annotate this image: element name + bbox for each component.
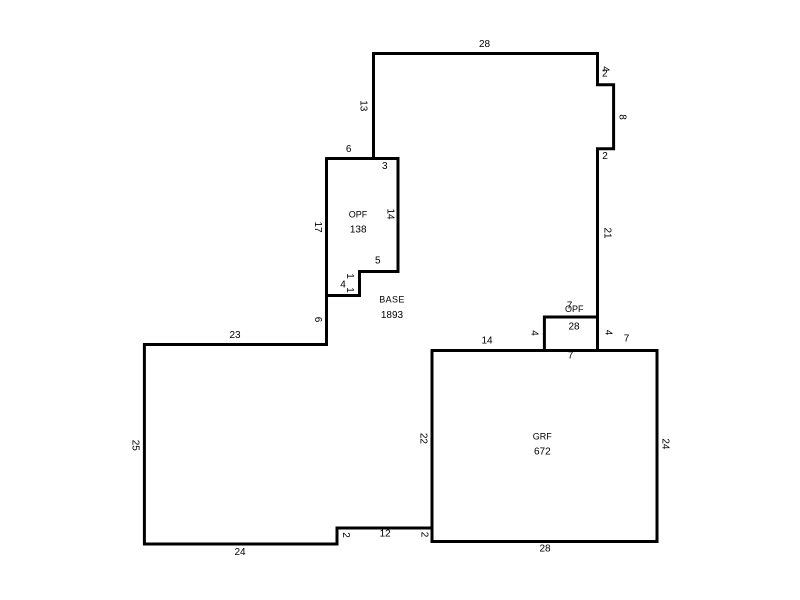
svg-text:672: 672 xyxy=(534,446,551,457)
svg-text:21: 21 xyxy=(601,227,612,239)
svg-text:1: 1 xyxy=(344,273,355,279)
svg-text:22: 22 xyxy=(417,433,428,445)
svg-text:6: 6 xyxy=(312,317,323,323)
svg-text:7: 7 xyxy=(568,350,574,361)
svg-text:GRF: GRF xyxy=(533,431,553,441)
svg-text:1893: 1893 xyxy=(381,310,404,321)
svg-text:2: 2 xyxy=(418,532,429,538)
svg-text:BASE: BASE xyxy=(379,295,405,305)
svg-text:28: 28 xyxy=(479,39,491,50)
svg-text:OPF: OPF xyxy=(565,304,584,314)
svg-text:23: 23 xyxy=(229,330,241,341)
svg-text:6: 6 xyxy=(346,144,352,155)
svg-text:4: 4 xyxy=(340,280,346,291)
svg-text:2: 2 xyxy=(602,151,608,162)
svg-text:28: 28 xyxy=(568,321,580,332)
svg-text:12: 12 xyxy=(380,529,392,540)
svg-text:8: 8 xyxy=(617,114,628,120)
svg-text:13: 13 xyxy=(357,100,368,112)
svg-text:2: 2 xyxy=(340,532,351,538)
svg-text:25: 25 xyxy=(130,440,141,452)
svg-text:24: 24 xyxy=(660,438,671,450)
svg-text:OPF: OPF xyxy=(349,209,368,219)
svg-text:4: 4 xyxy=(602,330,613,336)
svg-text:14: 14 xyxy=(384,208,395,220)
svg-text:17: 17 xyxy=(312,221,323,233)
svg-text:5: 5 xyxy=(375,256,381,267)
svg-text:28: 28 xyxy=(539,544,551,555)
svg-text:2: 2 xyxy=(602,69,608,80)
svg-text:3: 3 xyxy=(382,161,388,172)
svg-text:7: 7 xyxy=(624,334,630,345)
svg-text:24: 24 xyxy=(234,547,246,558)
svg-text:138: 138 xyxy=(350,225,367,236)
svg-text:4: 4 xyxy=(528,330,539,336)
svg-text:1: 1 xyxy=(344,287,355,293)
svg-text:14: 14 xyxy=(481,336,493,347)
